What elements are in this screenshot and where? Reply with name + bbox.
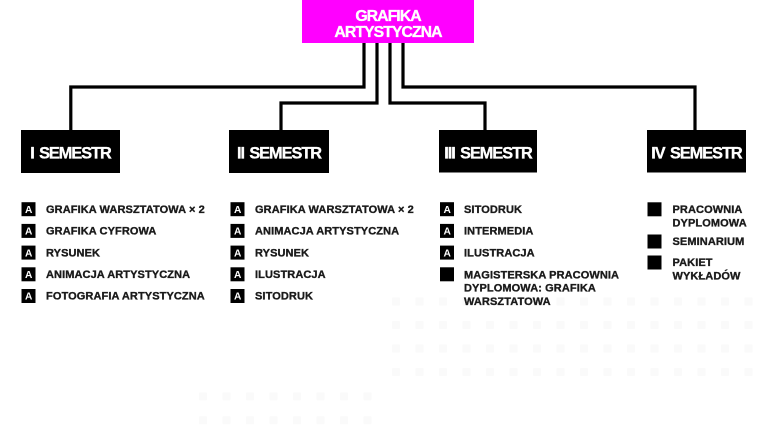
- svg-text:FOTOGRAFIA ARTYSTYCZNA: FOTOGRAFIA ARTYSTYCZNA: [46, 291, 205, 303]
- svg-text:A: A: [25, 292, 33, 303]
- svg-text:GRAFIKA CYFROWA: GRAFIKA CYFROWA: [46, 226, 156, 238]
- svg-text:A: A: [234, 227, 242, 238]
- svg-text:MAGISTERSKA PRACOWNIA: MAGISTERSKA PRACOWNIA: [464, 269, 619, 281]
- svg-text:A: A: [234, 248, 242, 259]
- svg-text:DYPLOMOWA: GRAFIKA: DYPLOMOWA: GRAFIKA: [464, 283, 596, 295]
- svg-text:II SEMESTR: II SEMESTR: [237, 145, 322, 163]
- svg-text:A: A: [25, 227, 33, 238]
- svg-text:SITODRUK: SITODRUK: [255, 291, 313, 303]
- svg-text:ILUSTRACJA: ILUSTRACJA: [255, 269, 326, 281]
- svg-text:III SEMESTR: III SEMESTR: [444, 145, 533, 163]
- svg-text:WARSZTATOWA: WARSZTATOWA: [464, 296, 551, 308]
- svg-text:A: A: [25, 205, 33, 216]
- svg-text:DYPLOMOWA: DYPLOMOWA: [673, 217, 747, 229]
- svg-text:GRAFIKA WARSZTATOWA × 2: GRAFIKA WARSZTATOWA × 2: [46, 204, 205, 216]
- svg-text:I SEMESTR: I SEMESTR: [30, 145, 112, 163]
- svg-text:IV SEMESTR: IV SEMESTR: [651, 145, 743, 163]
- svg-text:A: A: [25, 270, 33, 281]
- svg-text:PAKIET: PAKIET: [673, 257, 713, 269]
- svg-text:RYSUNEK: RYSUNEK: [255, 247, 309, 259]
- svg-text:ILUSTRACJA: ILUSTRACJA: [464, 247, 535, 259]
- svg-text:SEMINARIUM: SEMINARIUM: [673, 236, 745, 248]
- svg-text:WYKŁADÓW: WYKŁADÓW: [673, 270, 742, 283]
- svg-text:GRAFIKA: GRAFIKA: [355, 8, 421, 25]
- svg-text:A: A: [25, 248, 33, 259]
- svg-text:GRAFIKA WARSZTATOWA × 2: GRAFIKA WARSZTATOWA × 2: [255, 204, 414, 216]
- svg-text:A: A: [234, 270, 242, 281]
- svg-text:A: A: [234, 292, 242, 303]
- svg-text:ANIMACJA ARTYSTYCZNA: ANIMACJA ARTYSTYCZNA: [46, 269, 190, 281]
- svg-text:RYSUNEK: RYSUNEK: [46, 247, 100, 259]
- svg-text:A: A: [444, 205, 452, 216]
- svg-text:INTERMEDIA: INTERMEDIA: [464, 226, 533, 238]
- svg-text:SITODRUK: SITODRUK: [464, 204, 522, 216]
- svg-text:ARTYSTYCZNA: ARTYSTYCZNA: [334, 24, 442, 41]
- svg-text:ANIMACJA ARTYSTYCZNA: ANIMACJA ARTYSTYCZNA: [255, 226, 399, 238]
- svg-text:A: A: [444, 248, 452, 259]
- svg-text:A: A: [234, 205, 242, 216]
- svg-text:A: A: [444, 227, 452, 238]
- svg-text:PRACOWNIA: PRACOWNIA: [673, 204, 743, 216]
